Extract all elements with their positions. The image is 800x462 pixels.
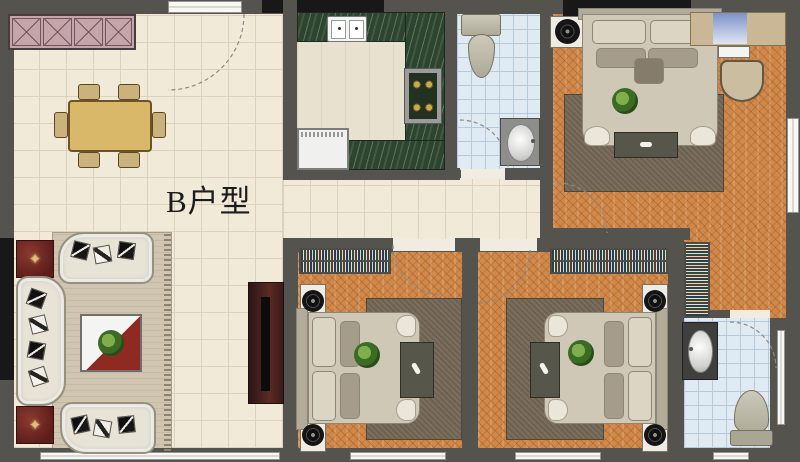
throw-pillow xyxy=(27,341,47,361)
bedroom2-bed-headboard xyxy=(296,308,308,430)
bed-pillow xyxy=(604,373,624,419)
bedroom3-closet xyxy=(684,242,710,318)
entry-door-opening xyxy=(168,1,242,13)
living-bottom-window xyxy=(40,452,280,460)
bed-pillow xyxy=(340,373,360,419)
left-wall-dark-strip xyxy=(0,238,14,380)
ornament-icon: ✦ xyxy=(29,418,42,433)
bed-decor-plant xyxy=(612,88,638,114)
bed-decor-plant xyxy=(354,342,380,368)
throw-pillow xyxy=(117,241,136,260)
kitchen-bath-wall xyxy=(445,0,457,180)
master-window xyxy=(787,118,799,213)
blanket-fold xyxy=(690,126,716,146)
speaker xyxy=(644,290,666,312)
bedroom3-bookshelf xyxy=(550,248,668,274)
washbasin-counter xyxy=(682,322,718,380)
bed-pillow xyxy=(628,371,652,421)
bathroom-bottom-bottom-window xyxy=(713,452,749,460)
bed-decor-plant xyxy=(568,340,594,366)
bedroom2-bookshelf xyxy=(299,248,391,274)
left-wall xyxy=(0,0,14,462)
speaker xyxy=(555,19,580,44)
tv-cabinet xyxy=(248,282,284,404)
bedroom-divider-wall xyxy=(462,238,478,462)
speaker xyxy=(644,424,666,446)
bed-pillow xyxy=(634,58,664,84)
throw-pillow xyxy=(117,415,136,434)
bedroom2-door-opening xyxy=(393,239,455,251)
hallway-floor xyxy=(283,178,555,240)
dresser-tray xyxy=(718,46,750,58)
dining-chair xyxy=(118,84,140,100)
tv xyxy=(261,297,270,391)
right-wall xyxy=(786,0,800,462)
dining-table xyxy=(68,100,152,152)
bedroom3-bed-headboard xyxy=(656,308,668,430)
throw-pillow xyxy=(93,245,113,265)
plan-title: B户型 xyxy=(166,176,252,221)
ornament-icon: ✦ xyxy=(29,252,42,267)
bedroom3-door-opening xyxy=(480,239,537,251)
red-side-table: ✦ xyxy=(16,406,54,444)
bathroom-bottom-door-opening xyxy=(730,310,770,318)
dining-chair xyxy=(54,112,68,138)
bed-pillow xyxy=(312,371,336,421)
floor-plan: B户型 ✦ ✦ xyxy=(0,0,800,462)
bedroom2-bottom-window xyxy=(350,452,446,460)
dresser-stool xyxy=(720,60,764,102)
dining-chair xyxy=(118,152,140,168)
dining-chair xyxy=(78,84,100,100)
dining-chair xyxy=(152,112,166,138)
blanket-fold xyxy=(584,126,610,146)
blanket-fold xyxy=(396,399,416,421)
bed-pillow xyxy=(628,317,652,367)
remote xyxy=(640,142,652,147)
toilet-tank xyxy=(461,14,501,36)
kitchen-left-wall xyxy=(283,0,297,180)
bedroom3-bottom-window xyxy=(515,452,601,460)
coffee-table-plant xyxy=(98,330,124,356)
dining-chair xyxy=(78,152,100,168)
rug-fringe xyxy=(164,234,171,456)
blanket-fold xyxy=(548,315,568,337)
blanket-fold xyxy=(396,315,416,337)
gas-stove xyxy=(404,68,442,124)
speaker xyxy=(302,290,324,312)
kitchen-appliance xyxy=(297,128,349,170)
bath-top-bottom-wall xyxy=(505,168,553,180)
bathroom-bottom-window xyxy=(777,330,785,425)
throw-pillow xyxy=(70,414,90,434)
bathroom-top-door-opening xyxy=(461,169,505,179)
bed-pillow xyxy=(592,20,646,44)
red-side-table: ✦ xyxy=(16,240,54,278)
speaker xyxy=(302,424,324,446)
throw-pillow xyxy=(93,419,113,439)
toilet-base xyxy=(730,430,773,446)
dresser-with-mirror xyxy=(690,12,786,46)
kitchen-sink xyxy=(327,16,367,42)
pink-sideboard xyxy=(8,14,136,50)
blanket-fold xyxy=(548,399,568,421)
washbasin-counter xyxy=(500,118,540,166)
bed-pillow xyxy=(604,321,624,367)
bed-pillow xyxy=(312,317,336,367)
